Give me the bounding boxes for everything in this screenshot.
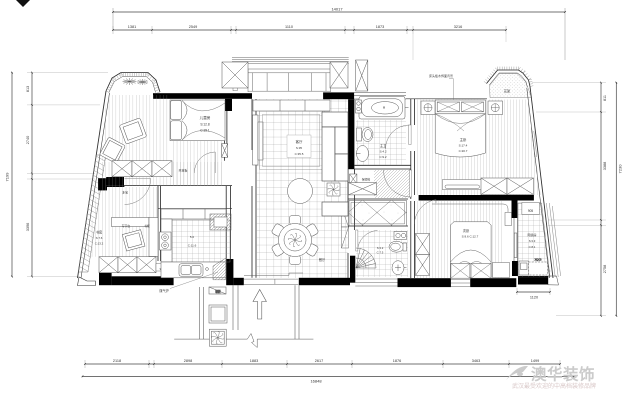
svg-text:次卧: 次卧 — [463, 228, 470, 233]
svg-text:XQC3: XQC3 — [535, 259, 542, 262]
svg-text:2118: 2118 — [113, 359, 121, 363]
svg-text:7230: 7230 — [618, 164, 623, 174]
svg-text:保姆梯: 保姆梯 — [362, 178, 371, 182]
svg-text:床头板木饰面背景: 床头板木饰面背景 — [429, 73, 453, 78]
svg-text:S:9.6 C:12.7: S:9.6 C:12.7 — [462, 235, 479, 239]
svg-text:主卫: 主卫 — [380, 143, 387, 148]
svg-text:813: 813 — [26, 86, 30, 92]
svg-text:多宝: 多宝 — [122, 190, 128, 195]
svg-text:C:35.5: C:35.5 — [295, 152, 304, 156]
svg-text:儿童房: 儿童房 — [200, 115, 211, 120]
svg-text:S:3.2: S:3.2 — [377, 246, 384, 250]
svg-text:1381: 1381 — [128, 25, 136, 29]
svg-text:14017: 14017 — [331, 7, 343, 12]
svg-text:C:11.6: C:11.6 — [188, 244, 197, 248]
svg-text:C:9.2: C:9.2 — [379, 155, 387, 159]
svg-text:武汉最受欢迎的中高档装修品牌: 武汉最受欢迎的中高档装修品牌 — [512, 382, 596, 390]
svg-text:客厅: 客厅 — [296, 139, 303, 144]
svg-text:3396: 3396 — [26, 223, 30, 231]
svg-text:澳华装饰: 澳华装饰 — [531, 365, 595, 384]
svg-text:905: 905 — [528, 209, 534, 213]
svg-text:7199: 7199 — [5, 172, 10, 182]
svg-text:开放板: 开放板 — [178, 168, 187, 173]
svg-text:写字台: 写字台 — [122, 224, 131, 228]
svg-text:3463: 3463 — [472, 359, 480, 363]
svg-text:1499: 1499 — [531, 359, 539, 363]
svg-text:餐厅: 餐厅 — [319, 257, 326, 262]
svg-text:C:8.1: C:8.1 — [529, 245, 536, 249]
svg-text:1876: 1876 — [393, 359, 401, 363]
svg-text:C:7.5: C:7.5 — [377, 251, 384, 255]
svg-text:C:13.2: C:13.2 — [95, 242, 104, 246]
svg-text:2758: 2758 — [603, 265, 607, 273]
svg-text:煤气炉: 煤气炉 — [159, 288, 169, 293]
svg-text:2898: 2898 — [184, 359, 192, 363]
svg-text:2740: 2740 — [26, 136, 30, 144]
svg-text:鞋柜: 鞋柜 — [215, 290, 221, 294]
svg-text:S:7.6: S:7.6 — [96, 236, 103, 240]
svg-text:2549: 2549 — [189, 25, 197, 29]
svg-text:2617: 2617 — [315, 359, 323, 363]
svg-text:S:4.2: S:4.2 — [379, 150, 386, 154]
svg-text:主卧: 主卧 — [460, 137, 467, 142]
svg-text:3216: 3216 — [454, 25, 462, 29]
svg-text:16848: 16848 — [310, 379, 322, 384]
svg-text:S:35: S:35 — [296, 146, 303, 150]
svg-text:C:20.7: C:20.7 — [459, 149, 468, 153]
svg-text:阿姨房: 阿姨房 — [527, 232, 536, 237]
svg-text:811: 811 — [603, 95, 607, 101]
svg-text:1120: 1120 — [530, 296, 538, 300]
svg-text:1873: 1873 — [376, 25, 384, 29]
svg-text:C:15.1: C:15.1 — [200, 129, 210, 133]
svg-text:1883: 1883 — [250, 359, 258, 363]
svg-text:1110: 1110 — [285, 25, 293, 29]
svg-text:S:17.4: S:17.4 — [459, 144, 468, 148]
svg-text:书房: 书房 — [96, 230, 102, 235]
svg-text:花架: 花架 — [504, 89, 511, 94]
svg-text:S:12.8: S:12.8 — [200, 123, 209, 127]
svg-text:S:3.3: S:3.3 — [529, 239, 536, 243]
svg-text:3388: 3388 — [603, 162, 607, 170]
svg-text:5.6: 5.6 — [190, 235, 195, 239]
svg-text:书柜: 书柜 — [144, 224, 150, 228]
